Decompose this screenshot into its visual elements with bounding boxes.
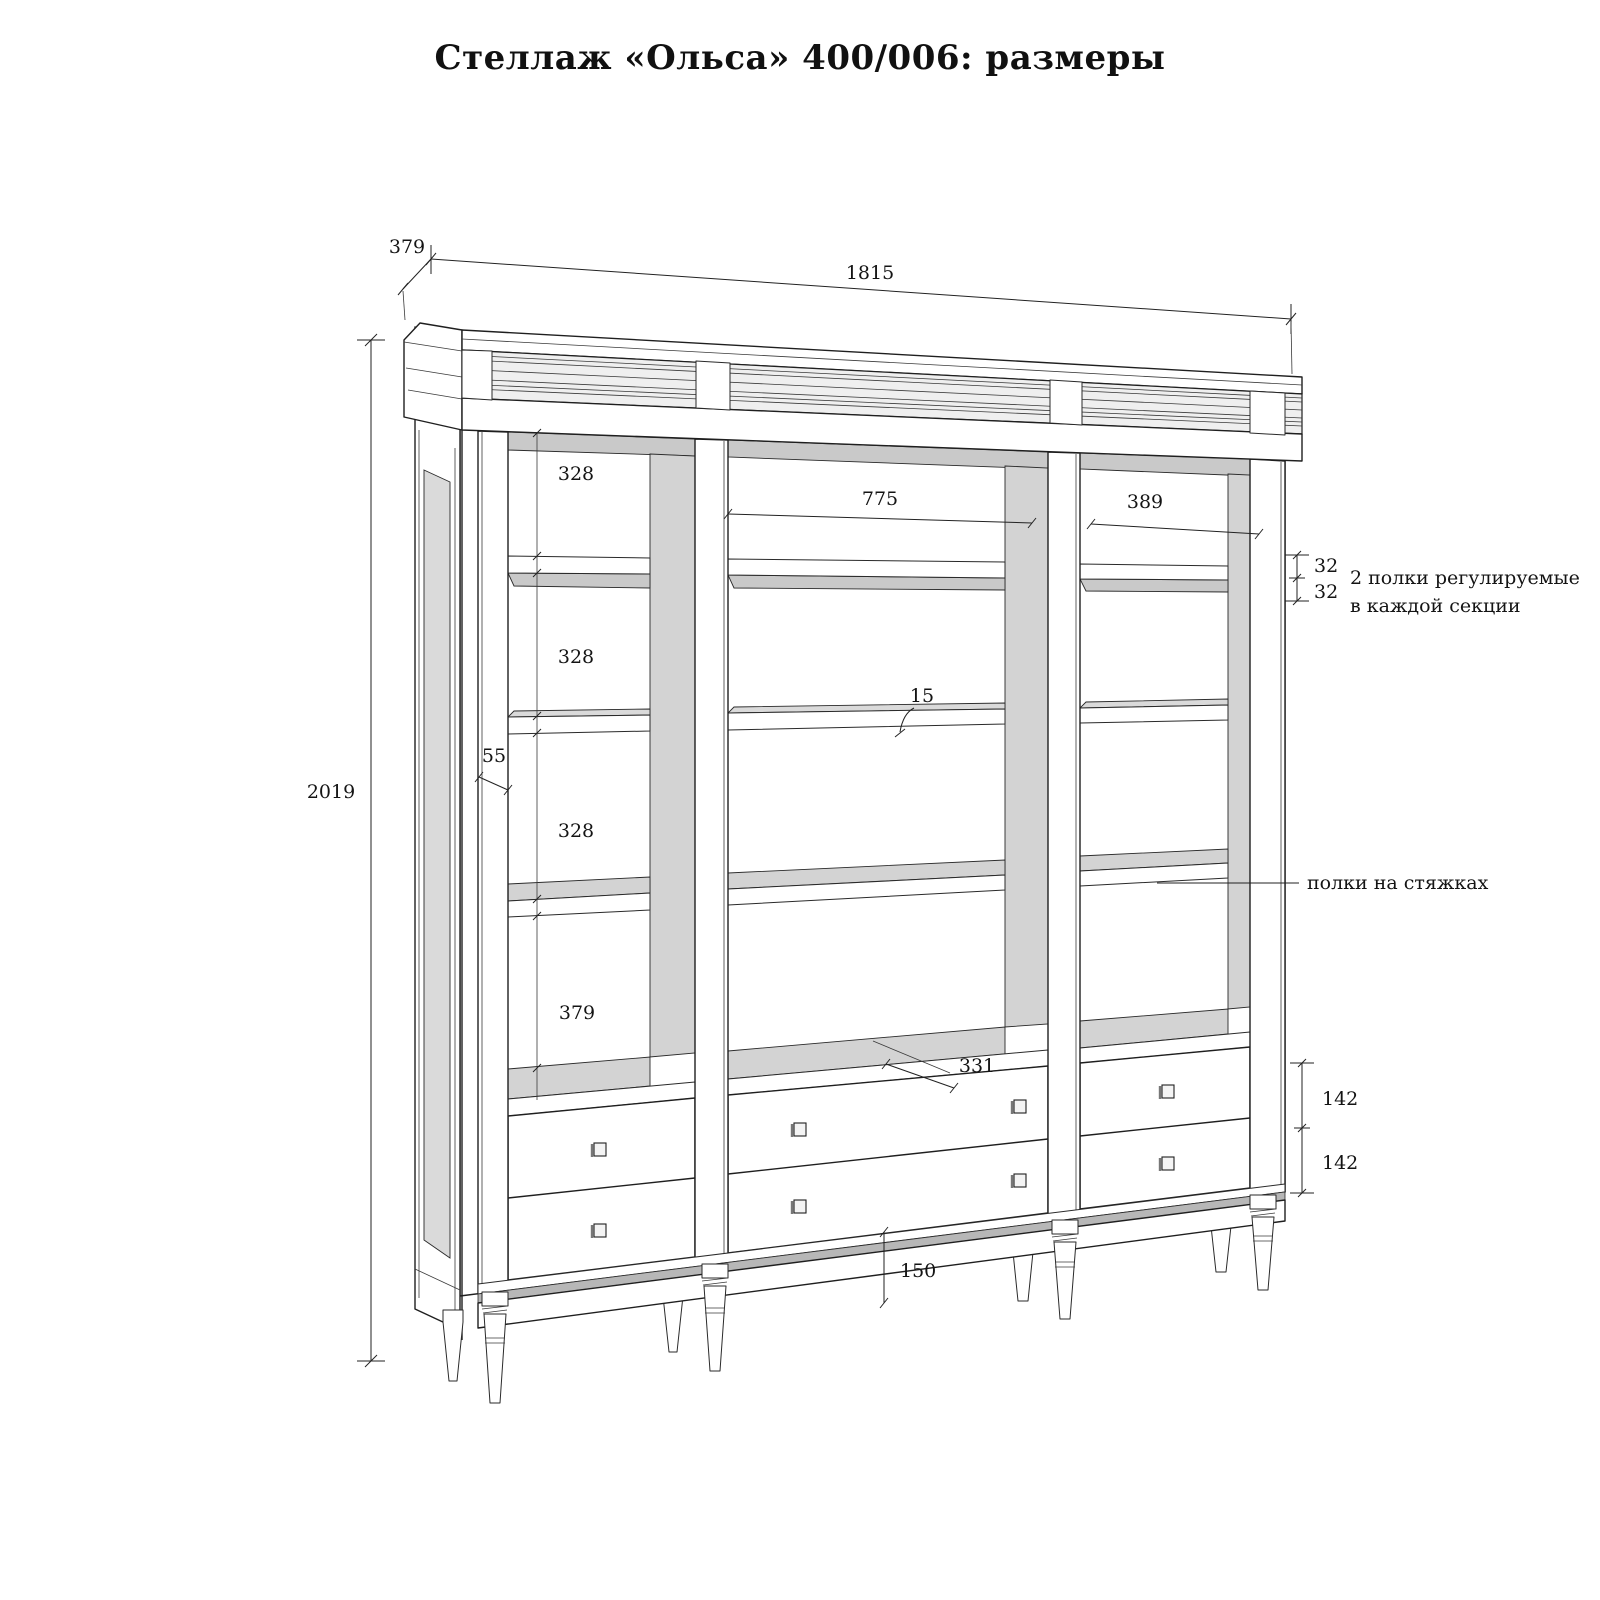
- dim-overall-height: 2019: [307, 334, 385, 1367]
- leg: [1250, 1195, 1276, 1290]
- knob: [792, 1123, 806, 1137]
- dim-adj-gap-b-label: 32: [1314, 581, 1338, 603]
- knob: [1160, 1085, 1174, 1099]
- knob: [1012, 1100, 1026, 1114]
- note-adjustable-shelves: 2 полки регулируемые в каждой секции: [1350, 567, 1580, 617]
- knob: [592, 1224, 606, 1238]
- dim-overall-width-label: 1815: [846, 262, 894, 284]
- bookcase-dimension-drawing: 379 1815 2019: [0, 0, 1600, 1600]
- dim-drawer-b-label: 142: [1322, 1152, 1358, 1174]
- dim-right-width-label: 389: [1127, 491, 1163, 513]
- dim-overall-height-label: 2019: [307, 781, 355, 803]
- dim-shelf-space-4: 379: [559, 1002, 595, 1024]
- drawing-page: Стеллаж «Ольса» 400/006: размеры: [0, 0, 1600, 1600]
- dim-adjustable-gaps: 32 32: [1285, 551, 1338, 605]
- dim-leg-height-label: 150: [900, 1260, 936, 1282]
- left-side-panel: [415, 327, 460, 1330]
- knob: [792, 1200, 806, 1214]
- knob: [1160, 1157, 1174, 1171]
- dim-drawer-a-label: 142: [1322, 1088, 1358, 1110]
- dim-stile-width-label: 55: [482, 745, 506, 767]
- dim-shelf-thickness-label: 15: [910, 685, 934, 707]
- dim-adj-gap-a-label: 32: [1314, 555, 1338, 577]
- dim-shelf-space-2: 328: [558, 646, 594, 668]
- note-adjustable-line2: в каждой секции: [1350, 595, 1521, 617]
- dim-mid-width-label: 775: [862, 488, 898, 510]
- knob: [1012, 1174, 1026, 1188]
- dim-overall-depth: 379: [389, 236, 436, 320]
- knob: [592, 1143, 606, 1157]
- dim-drawer-heights: 142 142: [1290, 1059, 1358, 1197]
- dim-deck-depth-label: 331: [959, 1055, 995, 1077]
- note-adjustable-line1: 2 полки регулируемые: [1350, 567, 1580, 589]
- dim-shelf-space-1: 328: [558, 463, 594, 485]
- dim-shelf-space-3: 328: [558, 820, 594, 842]
- dim-overall-depth-label: 379: [389, 236, 425, 258]
- note-shelves-on-ties-label: полки на стяжках: [1307, 872, 1489, 894]
